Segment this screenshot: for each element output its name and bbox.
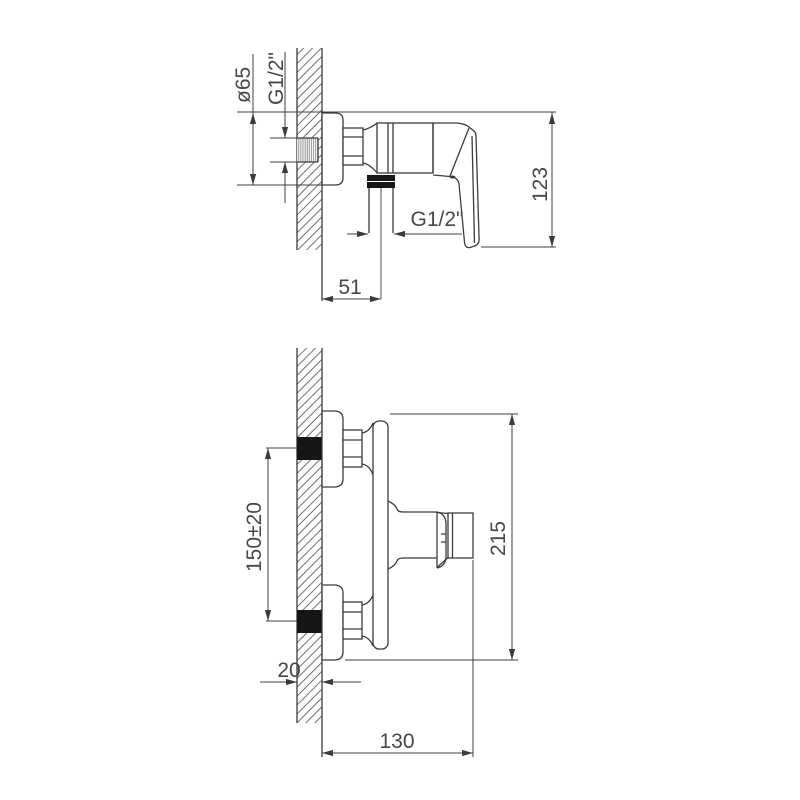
upper-cone — [362, 423, 373, 475]
upper-inlet-thread — [297, 437, 322, 460]
hex-nut — [343, 128, 363, 165]
wall-hatch-front — [297, 348, 322, 723]
lever-inner-edge — [472, 136, 475, 243]
lever-root-edge — [450, 128, 469, 176]
dim-label-outlet-thread: G1/2" — [411, 208, 464, 231]
wall-section-front — [297, 348, 322, 757]
dim-label-total-height: 215 — [487, 521, 510, 556]
technical-drawing-page: ø65 G1/2" 123 G1/2" 51 — [0, 0, 800, 800]
dim-total-depth: 130 — [322, 730, 473, 756]
outlet — [367, 175, 395, 299]
lower-hex-nut — [343, 602, 362, 639]
upper-hex-nut — [343, 430, 362, 467]
front-view: 150±20 215 20 130 — [243, 348, 518, 757]
cartridge-ring-profile — [437, 512, 446, 568]
cone-transition — [363, 124, 377, 173]
lever-detail-dot — [450, 176, 456, 179]
cartridge-ring-ticks — [441, 534, 446, 542]
dim-label-outlet-offset: 51 — [338, 276, 361, 299]
escutcheon — [322, 113, 343, 185]
dim-label-total-depth: 130 — [379, 730, 414, 753]
dim-flange-diameter: ø65 — [232, 54, 256, 185]
dim-label-inlet-thread: G1/2" — [265, 52, 288, 105]
handle-end-block — [448, 513, 473, 558]
upper-escutcheon — [322, 411, 343, 487]
lower-cone — [362, 595, 373, 646]
dim-outlet-thread: G1/2" — [347, 208, 463, 237]
cartridge-arm — [388, 501, 473, 569]
dim-inlet-spacing: 150±20 — [243, 448, 271, 621]
dim-total-height: 215 — [487, 414, 515, 660]
drawing-canvas: ø65 G1/2" 123 G1/2" 51 — [0, 0, 800, 800]
dim-label-inlet-spacing: 150±20 — [243, 502, 266, 572]
dim-outlet-offset: 51 — [322, 276, 381, 302]
inlet-thread-section — [297, 138, 318, 162]
dim-label-body-height: 123 — [529, 167, 552, 202]
body-slab — [373, 421, 388, 649]
dim-inlet-thread: G1/2" — [265, 52, 288, 203]
lower-inlet-thread — [297, 610, 322, 633]
dim-body-height: 123 — [529, 112, 555, 247]
dim-label-flange-diameter: ø65 — [232, 67, 255, 103]
dim-label-wall-thickness: 20 — [277, 659, 300, 682]
side-view: ø65 G1/2" 123 G1/2" 51 — [232, 48, 556, 302]
wall-section — [297, 48, 322, 301]
thread-texture — [297, 138, 318, 162]
faucet-body — [377, 123, 433, 173]
lower-escutcheon — [322, 585, 343, 660]
